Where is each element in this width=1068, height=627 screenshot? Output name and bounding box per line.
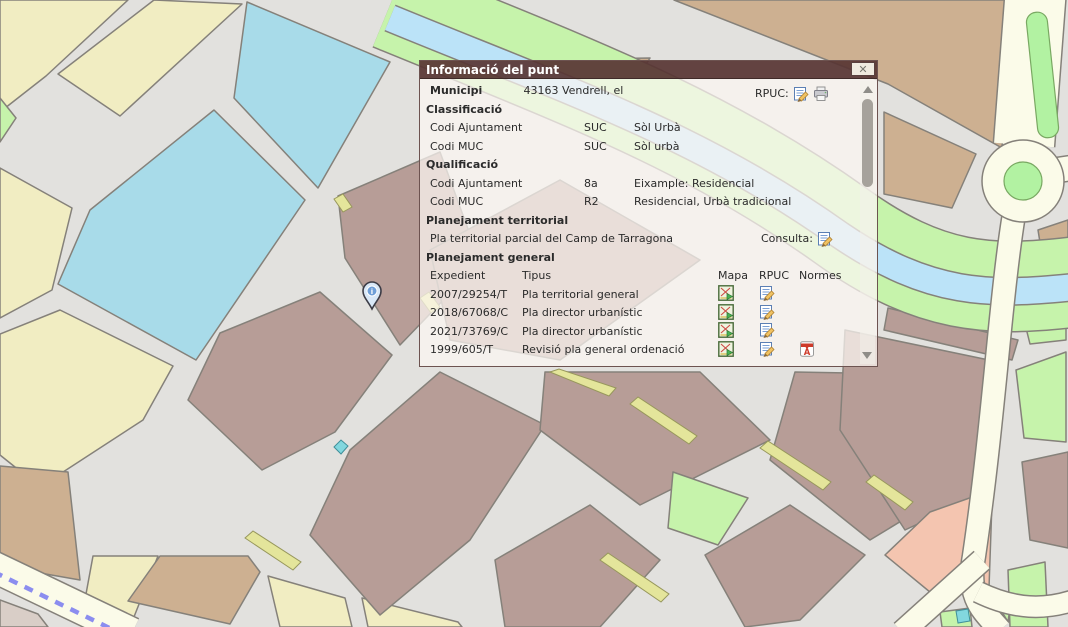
dialog-title: Informació del punt	[426, 63, 559, 77]
consulta-label: Consulta:	[761, 230, 813, 249]
classificacio-row: Codi MUCSUCSòl urbà	[426, 138, 857, 157]
rpuc-consult-icon[interactable]	[793, 86, 809, 102]
map-icon[interactable]	[718, 341, 734, 357]
qualificacio-row: Codi Ajuntament8aEixample: Residencial	[426, 175, 857, 194]
table-header: ExpedientTipusMapaRPUCNormes	[426, 267, 857, 286]
rpuc-doc-icon[interactable]	[759, 322, 775, 338]
table-row: 2007/29254/TPla territorial general	[426, 286, 857, 305]
rpuc-doc-icon[interactable]	[759, 285, 775, 301]
dialog-scrollbar[interactable]	[860, 81, 875, 364]
qualificacio-heading: Qualificació	[426, 156, 857, 175]
territorial-row: Pla territorial parcial del Camp de Tarr…	[426, 230, 857, 249]
rpuc-doc-icon[interactable]	[759, 304, 775, 320]
info-point-dialog: Informació del punt ✕ Municipi 43163 Ven…	[419, 60, 878, 367]
scroll-down-arrow[interactable]	[862, 352, 872, 359]
pdf-icon[interactable]	[799, 341, 815, 357]
dialog-titlebar[interactable]: Informació del punt ✕	[420, 61, 877, 79]
print-icon[interactable]	[813, 86, 829, 102]
qualificacio-row: Codi MUCR2Residencial, Urbà tradicional	[426, 193, 857, 212]
consulta-doc-icon[interactable]	[817, 231, 833, 247]
svg-text:i: i	[371, 288, 373, 296]
map-icon[interactable]	[718, 322, 734, 338]
rpuc-label: RPUC:	[755, 85, 789, 104]
territorial-heading: Planejament territorial	[426, 212, 857, 231]
scroll-up-arrow[interactable]	[863, 86, 873, 93]
roundabout-green-island	[1004, 162, 1042, 200]
map-icon[interactable]	[718, 304, 734, 320]
municipi-value: 43163 Vendrell, el	[524, 84, 624, 97]
municipi-label: Municipi	[426, 82, 520, 101]
scrollbar-thumb[interactable]	[862, 99, 873, 187]
map-icon[interactable]	[718, 285, 734, 301]
classificacio-row: Codi AjuntamentSUCSòl Urbà	[426, 119, 857, 138]
rpuc-doc-icon[interactable]	[759, 341, 775, 357]
cyan-parcel-corner	[956, 609, 970, 623]
dialog-body: Municipi 43163 Vendrell, el RPUC: Classi…	[420, 79, 877, 366]
general-heading: Planejament general	[426, 249, 857, 268]
table-row: 2018/67068/CPla director urbanístic	[426, 304, 857, 323]
table-row: 2021/73769/CPla director urbanístic	[426, 323, 857, 342]
close-button[interactable]: ✕	[851, 62, 875, 76]
table-row: 1999/605/TRevisió pla general ordenació	[426, 341, 857, 360]
